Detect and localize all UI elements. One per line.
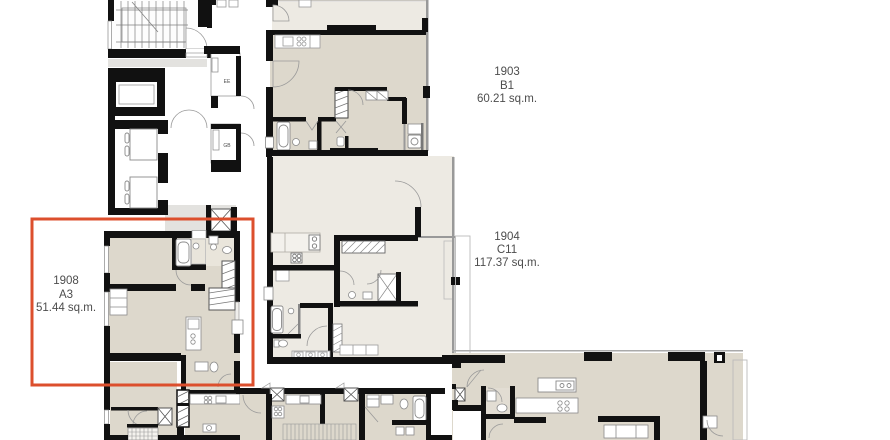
svg-text:C11: C11 xyxy=(497,244,517,256)
svg-text:60.21 sq.m.: 60.21 sq.m. xyxy=(477,93,537,105)
svg-text:117.37 sq.m.: 117.37 sq.m. xyxy=(474,257,540,269)
svg-text:B1: B1 xyxy=(500,80,514,92)
svg-text:GB: GB xyxy=(223,143,231,149)
svg-text:EE: EE xyxy=(224,79,231,85)
svg-text:1908: 1908 xyxy=(53,275,79,287)
svg-text:A3: A3 xyxy=(59,289,73,301)
svg-text:1904: 1904 xyxy=(494,231,520,243)
svg-text:51.44 sq.m.: 51.44 sq.m. xyxy=(36,302,96,314)
svg-text:1903: 1903 xyxy=(494,66,520,78)
